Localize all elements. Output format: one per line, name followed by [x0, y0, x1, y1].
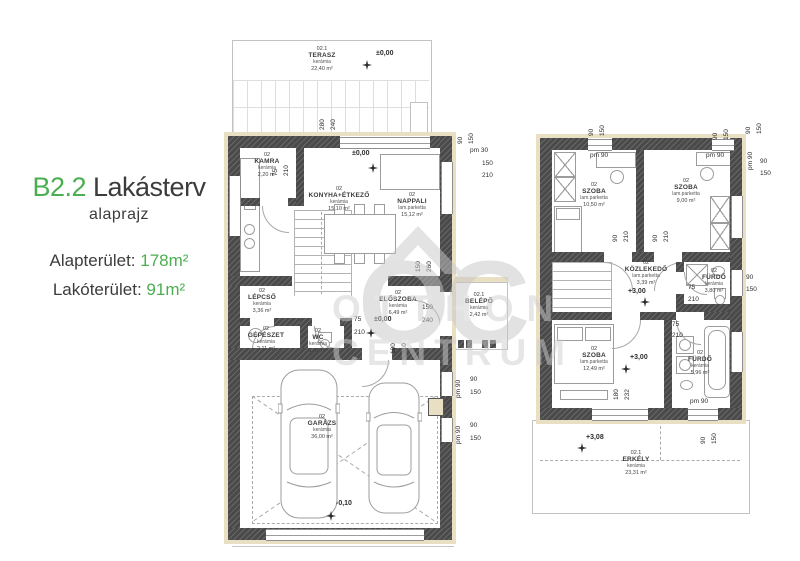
room-area: 2,11 m²: [238, 346, 294, 352]
room-label-szoba2: 02 SZOBA lam.parketta 9,00 m²: [658, 178, 714, 204]
room-area: 3,39 m²: [614, 280, 678, 286]
car-icon: [278, 366, 340, 522]
wall: [664, 320, 672, 408]
wall: [718, 408, 742, 420]
dim: pm 90: [590, 152, 608, 159]
wall: [228, 276, 292, 286]
living-area-line: Lakóterület: 91m²: [16, 280, 222, 300]
total-area-value: 178m²: [140, 251, 188, 270]
north-star-icon: [577, 443, 587, 453]
dim: pm 90: [747, 144, 754, 170]
room-label-kozlekedo: 02 KÖZLEKEDŐ lam.parketta 3,39 m²: [614, 260, 678, 286]
dim: 150: [468, 124, 475, 144]
dim: 90: [745, 114, 752, 134]
room-label-nappali: 02 NAPPALI lam.parketta 15,12 m²: [384, 192, 440, 218]
wall: [540, 138, 552, 420]
sink: [680, 380, 693, 390]
dim: 75: [672, 321, 679, 328]
bedroom-window: [712, 139, 734, 151]
wall: [612, 138, 712, 150]
wall: [300, 318, 312, 326]
dim: pm 90: [455, 372, 462, 398]
room-area: 1,26 m²: [300, 348, 336, 354]
dim: 150: [756, 114, 763, 134]
north-star-icon: [366, 328, 376, 338]
dim: 90: [470, 422, 477, 429]
dim: 150: [470, 389, 481, 396]
garage-window: [441, 418, 453, 442]
level-eloszoba: ±0,00: [374, 316, 391, 323]
dim-terrace-door-w: 280: [319, 104, 326, 130]
room-area: 2,42 m²: [452, 312, 506, 318]
floor-plan-sheet: B2.2 Lakásterv alaprajz Alapterület: 178…: [0, 0, 800, 561]
chair: [374, 253, 385, 264]
wall: [682, 252, 730, 262]
room-label-szoba1: 02 SZOBA lam.parketta 10,50 m²: [566, 182, 622, 208]
wardrobe: [710, 222, 730, 250]
room-label-wc: 02 WC kerámia 1,26 m²: [300, 328, 336, 354]
dim: pm 30: [470, 147, 488, 154]
room-area: 23,31 m²: [608, 470, 664, 476]
level-kozlekedo: +3,00: [628, 288, 646, 295]
wall: [228, 136, 340, 148]
wall: [552, 312, 612, 320]
terrace-step: [410, 102, 428, 136]
info-panel: B2.2 Lakásterv alaprajz Alapterület: 178…: [16, 172, 222, 300]
dim: 210: [672, 332, 683, 339]
sink: [244, 238, 255, 249]
bedroom-window: [731, 196, 743, 238]
balcony-door: [592, 409, 648, 421]
dim: 150: [760, 170, 771, 177]
garage-window: [441, 372, 453, 396]
room-label-eloszoba: 02 ELŐSZOBA kerámia 6,49 m²: [370, 290, 426, 316]
entry-step: [458, 340, 464, 348]
room-area: 9,00 m²: [658, 198, 714, 204]
plan-title: B2.2 Lakásterv: [16, 172, 222, 203]
dim: 75: [272, 158, 279, 176]
dim: 210: [283, 158, 290, 176]
dim: 210: [401, 334, 408, 354]
dim-terrace-door-h: 240: [330, 104, 337, 130]
living-area-label: Lakóterület:: [53, 280, 142, 299]
dim: 90: [652, 222, 659, 242]
dim: 150: [482, 160, 493, 167]
garage-door-opening: [362, 348, 392, 360]
wall: [552, 252, 604, 262]
chair: [354, 253, 365, 264]
dim: 90: [712, 120, 719, 140]
dim: 90: [760, 158, 767, 165]
pillow: [585, 327, 611, 341]
dim: 150: [470, 435, 481, 442]
wall: [640, 312, 676, 320]
room-area: 22,40 m²: [294, 66, 350, 72]
wall: [648, 408, 688, 420]
room-label-belepo: 02.1 BELÉPŐ kerámia 2,42 m²: [452, 292, 506, 318]
dim: 210: [482, 172, 493, 179]
dim: 210: [663, 222, 670, 242]
living-area-value: 91m²: [146, 280, 185, 299]
level-garazs: -0,10: [336, 500, 352, 507]
dining-table: [324, 214, 396, 254]
garage-door: [266, 529, 424, 541]
dim: 150: [599, 116, 606, 136]
plan-subtitle: alaprajz: [16, 206, 222, 224]
north-star-icon: [621, 364, 631, 374]
wardrobe: [554, 152, 576, 178]
entry-step: [466, 340, 472, 348]
dim: 90: [612, 222, 619, 242]
ground-line: [232, 546, 454, 547]
dim: 75: [354, 316, 361, 323]
dim: 150: [422, 304, 433, 311]
pillow: [557, 327, 583, 341]
entry-step: [490, 340, 496, 348]
dim: 150: [711, 424, 718, 444]
sink: [244, 224, 255, 235]
room-label-furdo1: 02 FÜRDŐ kerámia 3,80 m²: [692, 268, 736, 294]
dim: 150: [723, 120, 730, 140]
level-terasz: ±0,00: [376, 50, 393, 57]
entry-step: [482, 340, 488, 348]
level-szoba3: +3,00: [630, 354, 648, 361]
room-area: 36,00 m²: [294, 434, 350, 440]
room-area: 6,49 m²: [370, 310, 426, 316]
dim: 90: [588, 116, 595, 136]
chair: [334, 253, 345, 264]
terrace-door-window: [340, 137, 430, 149]
wall: [636, 150, 644, 262]
room-area: 3,80 m²: [692, 288, 736, 294]
dim: pm 90: [706, 152, 724, 159]
dim: 90: [746, 274, 753, 281]
plan-code: B2.2: [32, 172, 86, 202]
north-star-icon: [362, 60, 372, 70]
dim: 210: [688, 296, 699, 303]
dim: 260: [426, 250, 433, 272]
dim: 90: [457, 124, 464, 144]
room-label-furdo2: 02 FÜRDŐ kerámia 5,96 m²: [678, 350, 722, 376]
room-area: 12,49 m²: [566, 366, 622, 372]
wall: [676, 294, 684, 304]
wall: [388, 276, 440, 286]
dim: 100: [390, 334, 397, 354]
wall: [344, 318, 352, 348]
dim: 240: [422, 317, 433, 324]
dim: pm 90: [690, 398, 708, 405]
room-label-terasz: 02.1 TERASZ kerámia 22,40 m²: [294, 46, 350, 72]
wall: [288, 198, 296, 206]
insulation-band: [452, 277, 508, 282]
plan-title-text: Lakásterv: [93, 172, 206, 202]
room-area: 15,10 m²: [296, 206, 382, 212]
dim: 150: [415, 250, 422, 272]
bench: [560, 390, 608, 400]
room-label-garazs: 02 GARÁZS kerámia 36,00 m²: [294, 414, 350, 440]
room-label-erkely: 02.1 ERKÉLY kerámia 23,31 m²: [608, 450, 664, 476]
door-arc: [262, 206, 289, 233]
north-star-icon: [368, 163, 378, 173]
level-erkely: +3,08: [586, 434, 604, 441]
wall: [240, 318, 250, 326]
north-star-icon: [326, 511, 336, 521]
kitchen-window: [229, 176, 241, 236]
bath-window: [688, 409, 718, 421]
total-area-line: Alapterület: 178m²: [16, 251, 222, 271]
dim: 210: [354, 329, 365, 336]
bedroom-window: [588, 139, 612, 151]
entry-door-opening: [440, 292, 452, 336]
pillow: [556, 208, 580, 220]
room-label-gepeszet: 02 GÉPÉSZET kerámia 2,11 m²: [238, 326, 294, 352]
wall: [676, 304, 730, 312]
dim: 180: [613, 376, 620, 400]
wall: [274, 318, 300, 326]
bath-window: [731, 332, 743, 372]
total-area-label: Alapterület:: [50, 251, 136, 270]
room-area: 3,36 m²: [236, 308, 288, 314]
dim: 210: [623, 222, 630, 242]
dim: pm 90: [455, 418, 462, 444]
room-area: 5,96 m²: [678, 370, 722, 376]
living-window: [441, 162, 453, 214]
stair-walk-line: [321, 212, 322, 294]
dim: 90: [700, 424, 707, 444]
door-arc: [612, 320, 641, 349]
north-star-icon: [640, 297, 650, 307]
room-area: 10,50 m²: [566, 202, 622, 208]
stairs: [552, 262, 612, 312]
wall: [704, 312, 730, 320]
chimney: [428, 398, 444, 416]
sofa: [380, 154, 440, 190]
room-label-szoba3: 02 SZOBA lam.parketta 12,49 m²: [566, 346, 622, 372]
room-area: 15,12 m²: [384, 212, 440, 218]
dim: 90: [470, 376, 477, 383]
wall: [540, 408, 592, 420]
dim: 75: [688, 284, 695, 291]
level-nappali: ±0,00: [352, 150, 369, 157]
wall: [240, 198, 260, 206]
dim: 232: [624, 376, 631, 400]
car-icon: [366, 380, 422, 516]
room-label-lepcso: 02 LÉPCSŐ kerámia 3,36 m²: [236, 288, 288, 314]
dim: 150: [746, 286, 757, 293]
room-label-konyha: 02 KONYHA+ÉTKEZŐ kerámia 15,10 m²: [296, 186, 382, 212]
